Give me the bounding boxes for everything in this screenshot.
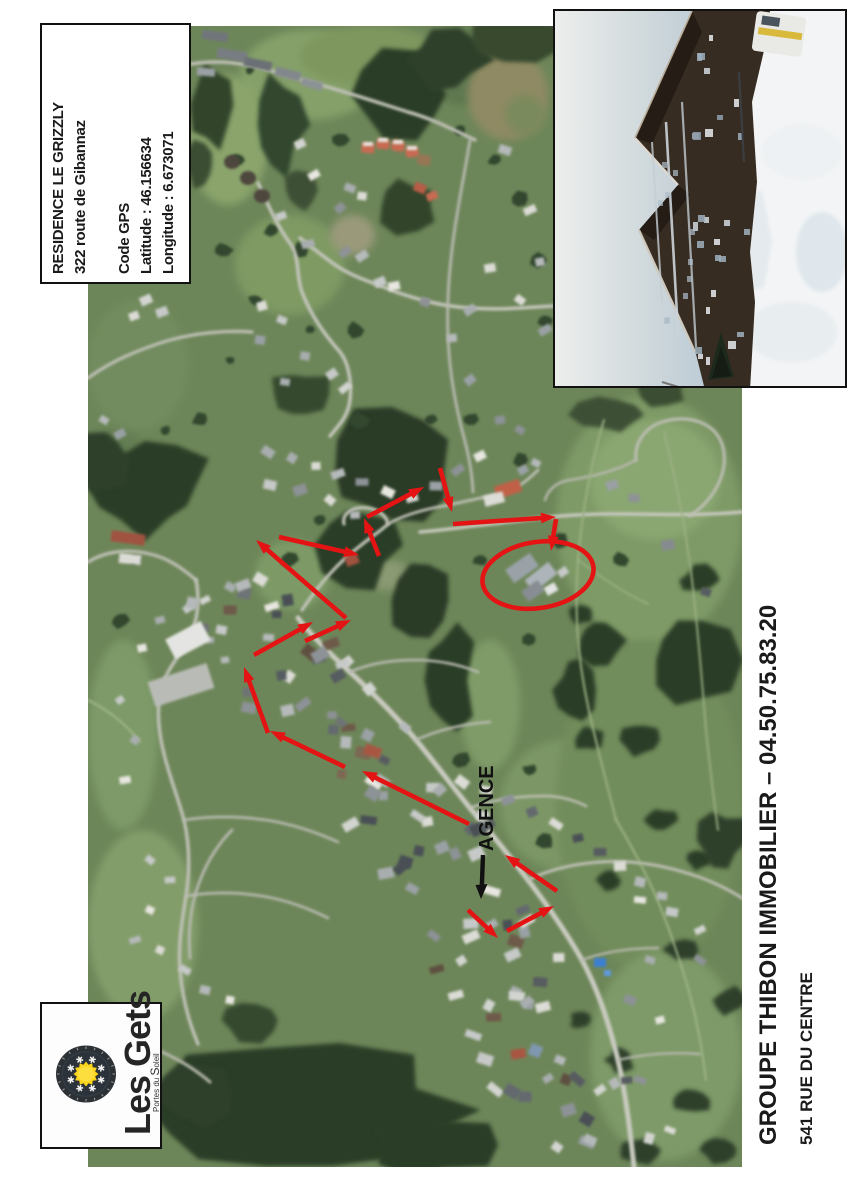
svg-text:AGENCE: AGENCE [476,765,498,851]
